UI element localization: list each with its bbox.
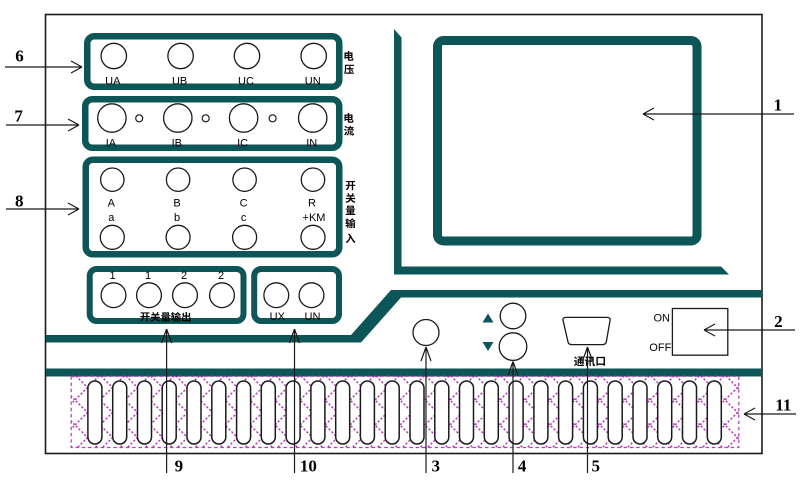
svg-text:IN: IN	[306, 138, 317, 150]
svg-text:7: 7	[14, 107, 23, 126]
svg-text:UA: UA	[105, 76, 121, 88]
svg-text:2: 2	[218, 270, 224, 282]
svg-text:8: 8	[15, 192, 24, 211]
svg-text:b: b	[174, 212, 180, 224]
svg-text:c: c	[241, 212, 247, 224]
svg-text:IB: IB	[172, 138, 182, 150]
svg-text:C: C	[240, 198, 248, 210]
svg-text:a: a	[108, 212, 115, 224]
svg-text:ON: ON	[654, 313, 671, 325]
svg-text:2: 2	[774, 312, 783, 331]
svg-text:4: 4	[518, 457, 527, 476]
svg-text:1: 1	[774, 96, 783, 115]
svg-text:UN: UN	[305, 76, 321, 88]
svg-text:10: 10	[300, 457, 317, 476]
svg-text:1: 1	[109, 270, 115, 282]
svg-text:2: 2	[181, 270, 187, 282]
svg-text:6: 6	[15, 47, 24, 66]
svg-text:UX: UX	[270, 311, 286, 323]
svg-text:UB: UB	[172, 76, 187, 88]
svg-text:B: B	[173, 198, 180, 210]
svg-text:9: 9	[175, 457, 184, 476]
svg-text:11: 11	[775, 396, 791, 415]
svg-text:3: 3	[431, 457, 440, 476]
svg-text:1: 1	[145, 270, 151, 282]
svg-text:R: R	[308, 198, 316, 210]
svg-text:UC: UC	[238, 76, 254, 88]
svg-text:A: A	[108, 198, 116, 210]
svg-text:+KM: +KM	[303, 212, 326, 224]
svg-text:OFF: OFF	[649, 342, 671, 354]
svg-text:IC: IC	[237, 138, 248, 150]
svg-text:5: 5	[591, 457, 600, 476]
svg-text:IA: IA	[106, 138, 117, 150]
svg-text:UN: UN	[305, 311, 321, 323]
